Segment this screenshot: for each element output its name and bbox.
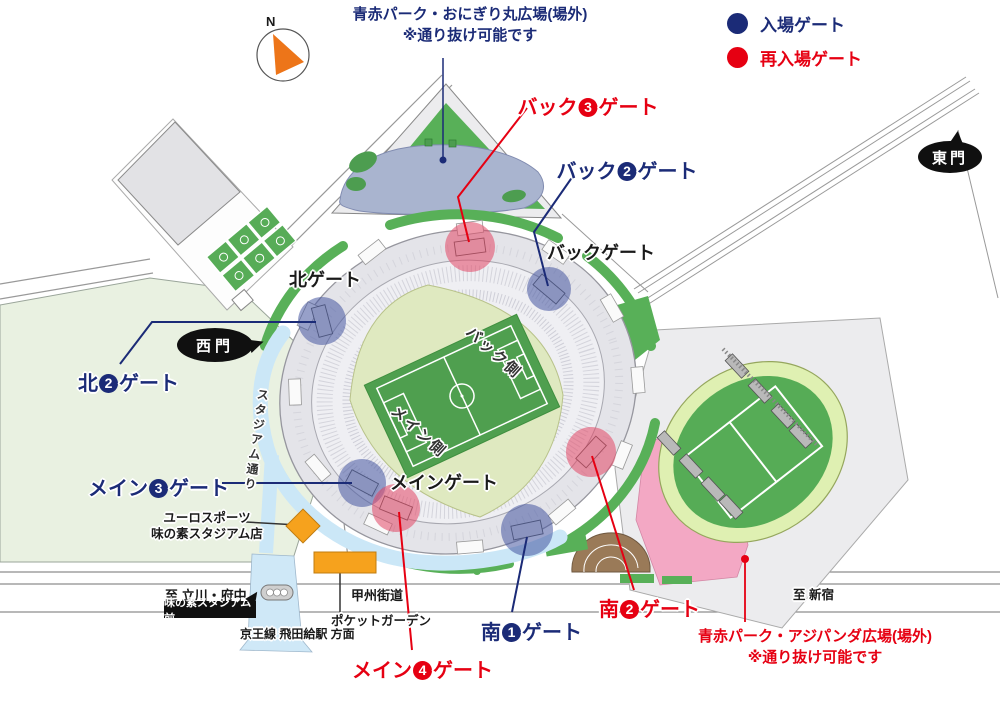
- east-gate-badge-label: 東門: [932, 147, 968, 168]
- west-gate-badge-label: 西門: [196, 335, 234, 356]
- bus-stop-badge-label: 味の素スタジアム前: [164, 594, 256, 626]
- entry-gate-dot-icon: [727, 13, 748, 34]
- gate-marker-south1: [501, 504, 553, 556]
- stadium-map: N 青赤パーク・おにぎり丸広場(場外) ※通り抜け可能です 入場ゲート 再入場ゲ…: [0, 0, 1000, 705]
- pocket-garden-label: ポケットガーデン: [331, 614, 431, 630]
- main4-number: 4: [413, 661, 432, 680]
- main4-gate-label: メイン4ゲート: [352, 654, 493, 683]
- south1-prefix: 南: [481, 622, 501, 644]
- onigiri-note-line2: ※通り抜け可能です: [353, 25, 588, 46]
- south2-suffix: ゲート: [640, 599, 700, 621]
- main4-suffix: ゲート: [433, 660, 493, 682]
- south1-gate-label: 南1ゲート: [481, 616, 582, 645]
- euro-sports-line1: ユーロスポーツ: [151, 511, 263, 527]
- main3-suffix: ゲート: [169, 478, 229, 500]
- gate-marker-back2: [527, 267, 571, 311]
- south2-number: 2: [620, 600, 639, 619]
- pocket-garden-marker: [314, 552, 376, 573]
- back2-gate-label: バック2ゲート: [557, 155, 698, 184]
- back2-suffix: ゲート: [638, 161, 698, 183]
- compass-icon: [257, 29, 309, 81]
- koshu-kaido-label: 甲州街道: [351, 585, 403, 604]
- bus-stop-badge: 味の素スタジアム前: [164, 601, 256, 618]
- main3-gate-label: メイン3ゲート: [88, 472, 229, 501]
- north2-gate-label: 北2ゲート: [78, 367, 179, 396]
- north2-prefix: 北: [78, 373, 98, 395]
- back3-number: 3: [579, 98, 598, 117]
- south2-prefix: 南: [599, 599, 619, 621]
- gate-marker-back3: [445, 222, 495, 272]
- ajipanda-note-line2: ※通り抜け可能です: [698, 647, 932, 668]
- back-gate-label: バックゲート: [547, 239, 655, 265]
- legend-reentry-gate: 再入場ゲート: [727, 45, 862, 70]
- onigiri-note-line1: 青赤パーク・おにぎり丸広場(場外): [353, 4, 588, 25]
- main3-number: 3: [149, 479, 168, 498]
- compass-n-label: N: [266, 14, 275, 29]
- east-gate-badge: 東門: [918, 141, 982, 173]
- north2-number: 2: [99, 374, 118, 393]
- gate-marker-south2: [566, 427, 616, 477]
- ajipanda-note-line1: 青赤パーク・アジパンダ広場(場外): [698, 626, 932, 647]
- euro-sports-line2: 味の素スタジアム店: [151, 527, 263, 543]
- main-gate-label: メインゲート: [390, 469, 498, 495]
- north2-suffix: ゲート: [119, 373, 179, 395]
- south1-suffix: ゲート: [522, 622, 582, 644]
- south1-number: 1: [502, 623, 521, 642]
- main3-prefix: メイン: [88, 478, 148, 500]
- entry-gate-label: 入場ゲート: [760, 11, 845, 36]
- to-shinjuku-label: 至 新宿: [793, 584, 834, 603]
- back2-prefix: バック: [557, 161, 617, 183]
- legend-entry-gate: 入場ゲート: [727, 11, 862, 36]
- main4-prefix: メイン: [352, 660, 412, 682]
- north-gate-label: 北ゲート: [289, 266, 361, 292]
- back2-number: 2: [618, 162, 637, 181]
- ajipanda-plaza-note: 青赤パーク・アジパンダ広場(場外) ※通り抜け可能です: [698, 626, 932, 668]
- bus-stop-icon: [261, 585, 293, 600]
- south2-gate-label: 南2ゲート: [599, 593, 700, 622]
- back3-suffix: ゲート: [599, 97, 659, 119]
- west-gate-badge: 西門: [177, 328, 253, 362]
- reentry-gate-label: 再入場ゲート: [760, 45, 862, 70]
- onigiri-plaza-note: 青赤パーク・おにぎり丸広場(場外) ※通り抜け可能です: [353, 4, 588, 46]
- east-gate-pointer: [949, 130, 964, 144]
- euro-sports-label: ユーロスポーツ 味の素スタジアム店: [151, 511, 263, 542]
- reentry-gate-dot-icon: [727, 47, 748, 68]
- back3-gate-label: バック3ゲート: [518, 91, 659, 120]
- legend: 入場ゲート 再入場ゲート: [727, 11, 862, 79]
- back3-prefix: バック: [518, 97, 578, 119]
